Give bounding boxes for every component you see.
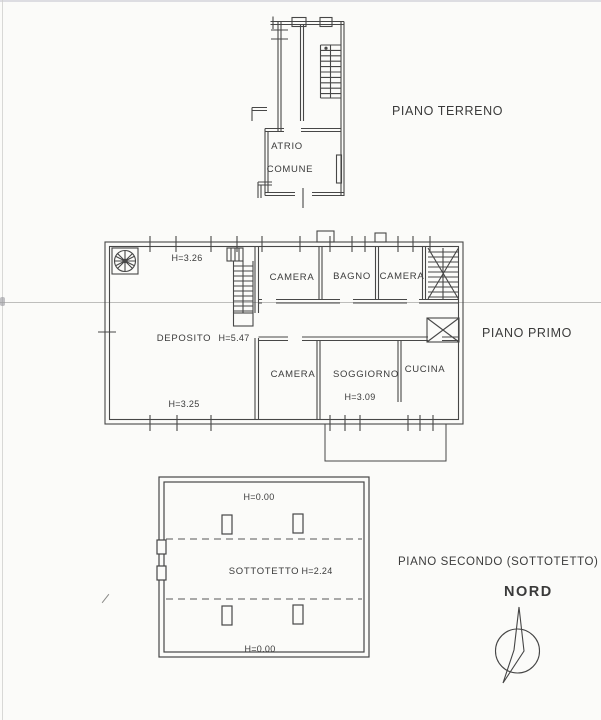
room-label-atrio: ATRIO — [271, 141, 303, 152]
nord-label: NORD — [504, 584, 553, 600]
floor-plan-ground: ATRIO COMUNE — [245, 12, 357, 214]
stair-icon-ground — [321, 45, 342, 98]
compass-needle-icon — [503, 607, 524, 683]
floor-title-piano-secondo: PIANO SECONDO (SOTTOTETTO) — [398, 556, 598, 568]
room-label-camera-right: CAMERA — [380, 271, 425, 282]
height-label-attic-top: H=0.00 — [243, 492, 274, 502]
height-label-first-bottom: H=3.25 — [168, 399, 199, 409]
room-label-camera-top: CAMERA — [270, 272, 315, 283]
fan-icon — [112, 248, 138, 274]
scan-edge-top — [0, 0, 601, 2]
height-label-first-top: H=3.26 — [171, 253, 202, 263]
height-label-sottotetto: H=2.24 — [301, 566, 332, 576]
height-label-deposito: H=5.47 — [218, 333, 249, 343]
room-label-comune: COMUNE — [267, 164, 313, 175]
compass-circle — [496, 629, 540, 673]
floor-plan-first: H=3.26 CAMERA BAGNO CAMERA DEPOSITO H=5.… — [95, 225, 475, 470]
scan-smudge — [0, 297, 5, 306]
room-label-sottotetto: SOTTOTETTO — [229, 566, 300, 577]
height-label-soggiorno: H=3.09 — [344, 392, 375, 402]
scan-edge-left — [2, 0, 3, 720]
room-label-soggiorno: SOGGIORNO — [333, 369, 399, 380]
room-label-camera-bottom: CAMERA — [271, 369, 316, 380]
stair-icon-deposito — [227, 248, 253, 326]
room-label-bagno: BAGNO — [333, 271, 371, 282]
floor-title-piano-primo: PIANO PRIMO — [482, 326, 572, 340]
room-label-deposito: DEPOSITO — [157, 333, 212, 344]
room-label-cucina: CUCINA — [405, 364, 446, 375]
shaft-icon — [427, 318, 459, 342]
scanned-floorplan-page: ATRIO COMUNE — [0, 0, 601, 720]
floor-title-piano-terreno: PIANO TERRENO — [392, 104, 503, 118]
height-label-attic-bottom: H=0.00 — [244, 644, 275, 654]
atrio-room: ATRIO COMUNE — [267, 141, 313, 175]
floor-plan-attic: H=0.00 SOTTOTETTO H=2.24 H=0.00 — [150, 470, 380, 665]
scan-mark — [102, 594, 110, 603]
stair-icon-first — [428, 248, 459, 299]
